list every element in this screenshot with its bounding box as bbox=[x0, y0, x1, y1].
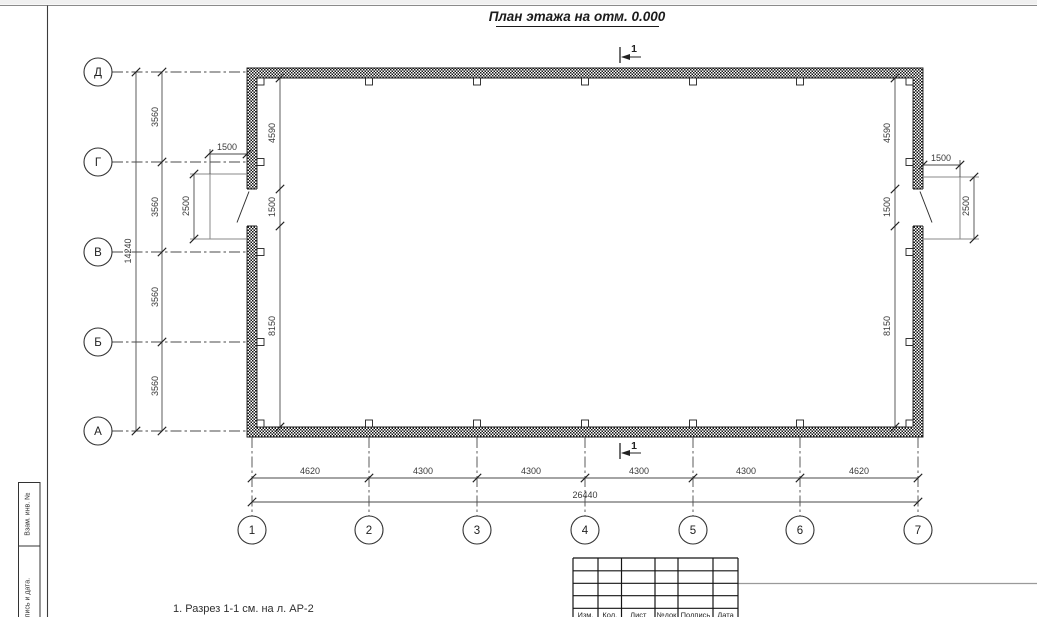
pilaster bbox=[366, 420, 373, 427]
section-arrowhead-icon bbox=[621, 450, 630, 456]
axis-label-row: Б bbox=[94, 337, 102, 349]
pilaster bbox=[257, 339, 264, 346]
pilaster bbox=[906, 249, 913, 256]
dim-text: 1500 bbox=[882, 197, 892, 217]
dim-text: 4620 bbox=[849, 466, 869, 476]
right-door: 1500 2500 bbox=[919, 153, 979, 243]
tb-header: Дата bbox=[717, 611, 734, 617]
top-strip bbox=[0, 0, 1037, 5]
tb-header: №док bbox=[657, 611, 678, 617]
axis-label-col: 1 bbox=[249, 525, 255, 537]
pilaster bbox=[474, 78, 481, 85]
walls bbox=[246, 68, 924, 437]
axis-label-row: Д bbox=[94, 67, 102, 79]
pilaster bbox=[906, 339, 913, 346]
dim-text: 4300 bbox=[521, 466, 541, 476]
pilaster bbox=[366, 78, 373, 85]
axis-label-col: 2 bbox=[366, 525, 372, 537]
plan-canvas: Взам. инв. № Подпись и дата. План этажа … bbox=[0, 0, 1037, 617]
tb-header: Кол. bbox=[602, 611, 617, 617]
pilaster bbox=[797, 420, 804, 427]
dim-text-bottom-total: 26440 bbox=[572, 490, 597, 500]
dim-text: 4300 bbox=[413, 466, 433, 476]
left-door: 1500 2500 bbox=[181, 142, 251, 243]
section-number: 1 bbox=[631, 43, 637, 55]
interior-dimensions: 4590 1500 8150 4590 1500 8150 bbox=[267, 74, 899, 431]
pilaster bbox=[906, 420, 913, 427]
pilaster bbox=[797, 78, 804, 85]
pilaster bbox=[257, 159, 264, 166]
stamp-label-podpis: Подпись и дата. bbox=[25, 578, 32, 617]
pilaster bbox=[257, 78, 264, 85]
dim-text: 1500 bbox=[217, 142, 237, 152]
axis-label-col: 7 bbox=[915, 525, 921, 537]
dim-text: 2500 bbox=[961, 196, 971, 216]
dim-text: 3560 bbox=[150, 287, 160, 307]
stamp-label-vzam: Взам. инв. № bbox=[25, 492, 32, 535]
right-door-opening bbox=[912, 189, 924, 226]
axis-label-col: 3 bbox=[474, 525, 480, 537]
drawing-title: План этажа на отм. 0.000 bbox=[489, 9, 666, 24]
pilaster bbox=[474, 420, 481, 427]
tb-header: Изм. bbox=[577, 611, 593, 617]
dim-text: 8150 bbox=[267, 316, 277, 336]
pilaster bbox=[690, 78, 697, 85]
pilaster bbox=[582, 78, 589, 85]
dim-text-left-total: 14240 bbox=[123, 238, 133, 263]
section-mark-bottom: 1 bbox=[620, 440, 641, 459]
col-axis-markers: 1 2 3 4 5 6 7 bbox=[238, 516, 932, 544]
dim-text: 1500 bbox=[931, 153, 951, 163]
dim-text: 4620 bbox=[300, 466, 320, 476]
axis-label-row: А bbox=[94, 426, 102, 438]
axis-label-row: Г bbox=[95, 157, 102, 169]
dim-text: 3560 bbox=[150, 107, 160, 127]
pilaster bbox=[582, 420, 589, 427]
row-axis-markers: Д Г В Б А bbox=[84, 58, 112, 445]
tb-header: Лист bbox=[630, 611, 647, 617]
wall-ring bbox=[247, 68, 923, 437]
dim-text: 3560 bbox=[150, 376, 160, 396]
dim-text: 4300 bbox=[629, 466, 649, 476]
pilasters bbox=[257, 78, 913, 427]
tb-header: Подпись bbox=[681, 611, 711, 617]
axis-label-col: 6 bbox=[797, 525, 803, 537]
dim-text: 4300 bbox=[736, 466, 756, 476]
drawing-sheet: Взам. инв. № Подпись и дата. План этажа … bbox=[0, 0, 1037, 617]
dim-text: 4590 bbox=[267, 123, 277, 143]
pilaster bbox=[690, 420, 697, 427]
section-mark-top: 1 bbox=[620, 43, 641, 63]
dim-text: 3560 bbox=[150, 197, 160, 217]
row-axes: Д Г В Б А bbox=[84, 58, 247, 445]
left-dimensions: 14240 3560 3560 3560 3560 bbox=[123, 68, 166, 435]
section-arrowhead-icon bbox=[621, 54, 630, 60]
pilaster bbox=[906, 78, 913, 85]
section-number: 1 bbox=[631, 440, 637, 452]
axis-label-col: 4 bbox=[582, 525, 589, 537]
axis-label-col: 5 bbox=[690, 525, 696, 537]
page-frame bbox=[0, 0, 1037, 617]
sidebar-stamps: Взам. инв. № Подпись и дата. bbox=[19, 483, 41, 617]
dim-text: 4590 bbox=[882, 123, 892, 143]
title-block: Изм. Кол. Лист №док Подпись Дата bbox=[573, 558, 738, 617]
dim-text: 2500 bbox=[181, 196, 191, 216]
pilaster bbox=[906, 159, 913, 166]
sheet-note: 1. Разрез 1-1 см. на л. АР-2 bbox=[173, 603, 314, 615]
pilaster bbox=[257, 249, 264, 256]
pilaster bbox=[257, 420, 264, 427]
axis-label-row: В bbox=[94, 247, 102, 259]
dim-text: 8150 bbox=[882, 316, 892, 336]
dim-text: 1500 bbox=[267, 197, 277, 217]
